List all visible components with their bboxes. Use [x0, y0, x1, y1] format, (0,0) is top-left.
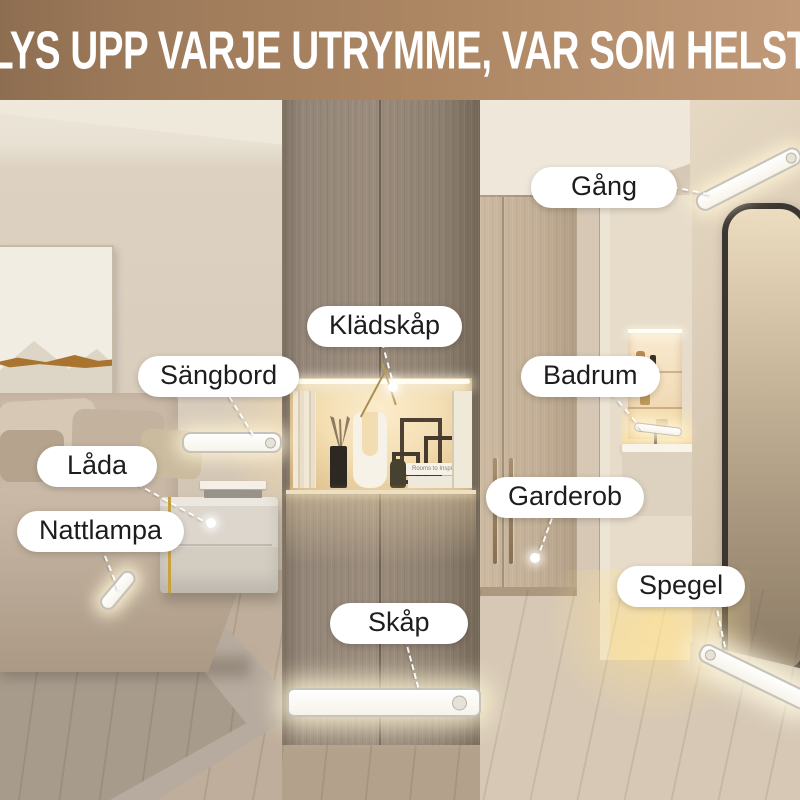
callout-dot-kladskap — [388, 382, 398, 392]
label-lada: Låda — [37, 446, 157, 487]
label-kladskap: Klädskåp — [307, 306, 462, 347]
header-title: LYS UPP VARJE UTRYMME, VAR SOM HELST — [0, 19, 800, 81]
small-vase — [390, 459, 406, 488]
motion-sensor-icon — [452, 695, 467, 710]
niche-books-left — [293, 391, 316, 488]
vase-notch — [362, 412, 378, 456]
niche-glow-spill — [286, 494, 476, 564]
book — [204, 490, 262, 498]
label-skap: Skåp — [330, 603, 468, 644]
u-shaped-vase — [353, 412, 387, 488]
label-sangbord: Sängbord — [138, 356, 299, 397]
book — [200, 481, 266, 489]
motion-sensor-icon — [265, 437, 276, 448]
callout-dot-garderob — [530, 553, 540, 563]
label-gang: Gång — [531, 167, 677, 208]
motion-sensor-icon — [784, 150, 799, 165]
label-spegel: Spegel — [617, 566, 745, 607]
label-nattlampa: Nattlampa — [17, 511, 184, 552]
callout-dot-lada — [206, 518, 216, 528]
bathroom-niche-light — [628, 329, 682, 333]
wall-painting — [0, 245, 114, 407]
floor-under-cabinet — [282, 745, 480, 800]
upright-book — [452, 391, 472, 488]
promo-image: LYS UPP VARJE UTRYMME, VAR SOM HELST — [0, 0, 800, 800]
wardrobe-door-seam — [502, 197, 504, 590]
faucet — [654, 433, 657, 444]
nightstand-drawer-seam — [168, 544, 272, 546]
motion-sensor-icon — [703, 648, 718, 663]
label-badrum: Badrum — [521, 356, 660, 397]
book-title: Rooms to Inspire — [412, 466, 457, 472]
books-on-nightstand — [200, 481, 266, 498]
light-bar-sangbord — [182, 432, 282, 453]
room-photo: Rooms to Inspire — [0, 100, 800, 800]
label-garderob: Garderob — [486, 477, 644, 518]
light-bar-skap — [287, 688, 481, 717]
header-banner: LYS UPP VARJE UTRYMME, VAR SOM HELST — [0, 0, 800, 102]
reed-diffuser-bottle — [330, 446, 347, 488]
vanity-counter — [622, 444, 692, 452]
